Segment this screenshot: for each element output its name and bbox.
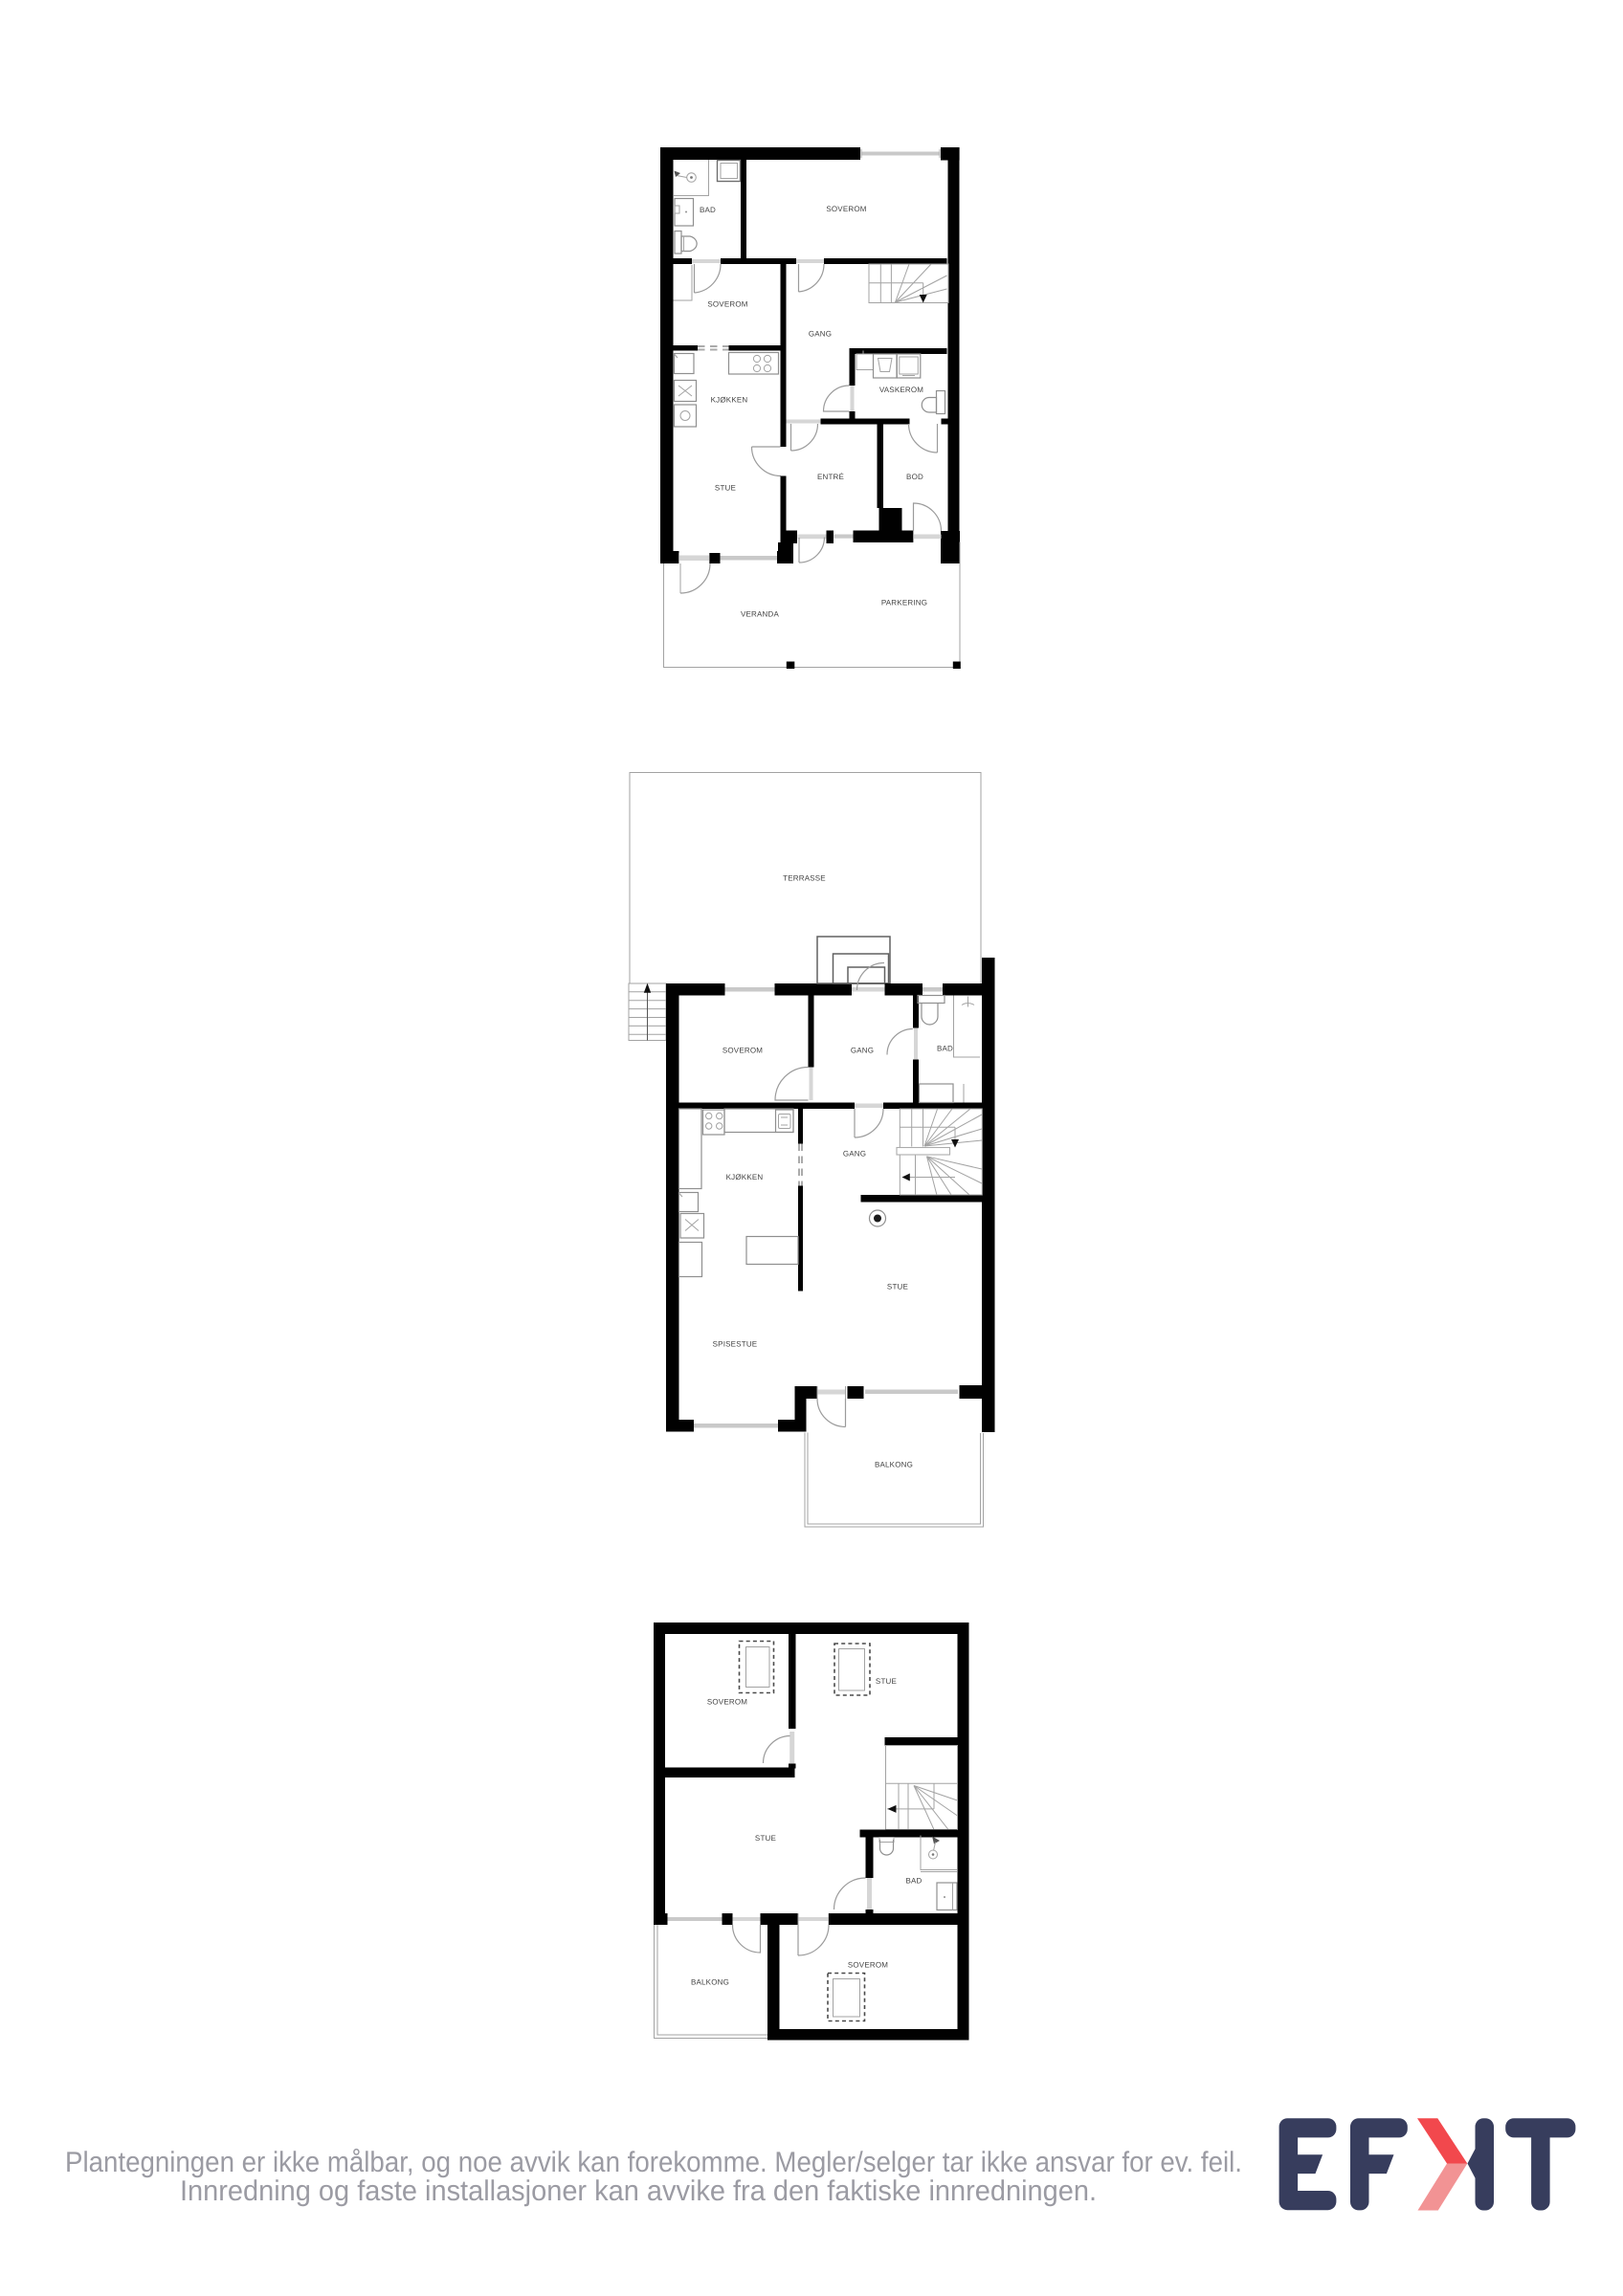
- svg-text:SOVEROM: SOVEROM: [723, 1047, 763, 1055]
- svg-text:BALKONG: BALKONG: [875, 1461, 913, 1469]
- svg-text:TERRASSE: TERRASSE: [783, 874, 826, 883]
- svg-text:SOVEROM: SOVEROM: [707, 1698, 747, 1707]
- svg-text:GANG: GANG: [851, 1047, 874, 1055]
- svg-text:GANG: GANG: [809, 330, 832, 339]
- svg-text:SPISESTUE: SPISESTUE: [713, 1340, 758, 1349]
- svg-text:STUE: STUE: [755, 1834, 776, 1843]
- svg-text:ENTRÉ: ENTRÉ: [817, 473, 844, 481]
- svg-text:GANG: GANG: [843, 1150, 866, 1159]
- svg-text:SOVEROM: SOVEROM: [707, 300, 747, 309]
- svg-text:BAD: BAD: [700, 206, 716, 214]
- svg-text:STUE: STUE: [876, 1677, 897, 1686]
- svg-text:SOVEROM: SOVEROM: [826, 205, 866, 213]
- svg-text:KJØKKEN: KJØKKEN: [711, 396, 748, 405]
- svg-text:BAD: BAD: [905, 1877, 922, 1886]
- svg-text:BALKONG: BALKONG: [691, 1978, 729, 1987]
- svg-text:VASKEROM: VASKEROM: [879, 386, 923, 394]
- svg-text:Innredning og faste installasj: Innredning og faste installasjoner kan a…: [180, 2175, 1097, 2207]
- svg-text:PARKERING: PARKERING: [881, 599, 927, 607]
- svg-text:BOD: BOD: [906, 473, 923, 481]
- svg-text:STUE: STUE: [887, 1283, 908, 1291]
- svg-text:KJØKKEN: KJØKKEN: [726, 1173, 764, 1181]
- svg-text:SOVEROM: SOVEROM: [848, 1961, 888, 1970]
- svg-text:BAD: BAD: [937, 1045, 953, 1053]
- svg-text:STUE: STUE: [715, 484, 736, 493]
- svg-text:Plantegningen er ikke målbar,: Plantegningen er ikke målbar, og noe avv…: [65, 2147, 1242, 2178]
- svg-text:VERANDA: VERANDA: [741, 610, 780, 619]
